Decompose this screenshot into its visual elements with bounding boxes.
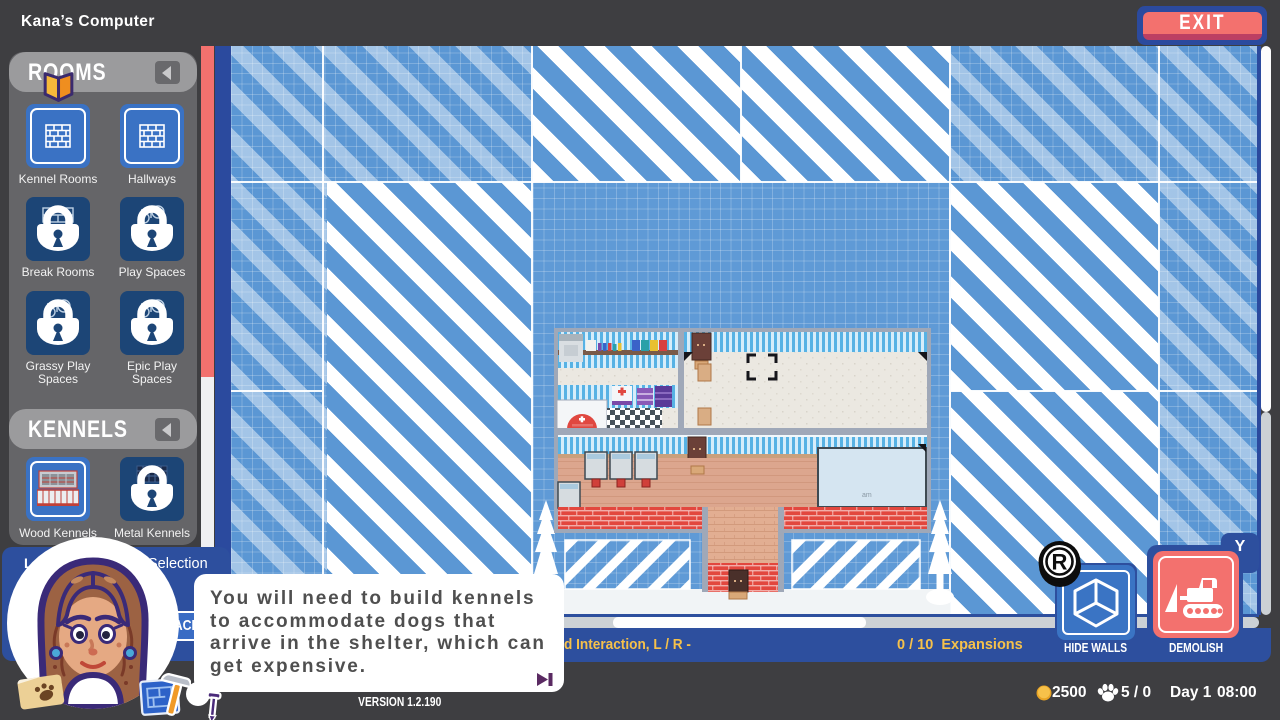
svg-text:am: am xyxy=(862,492,872,499)
svg-text:R: R xyxy=(1052,550,1068,575)
